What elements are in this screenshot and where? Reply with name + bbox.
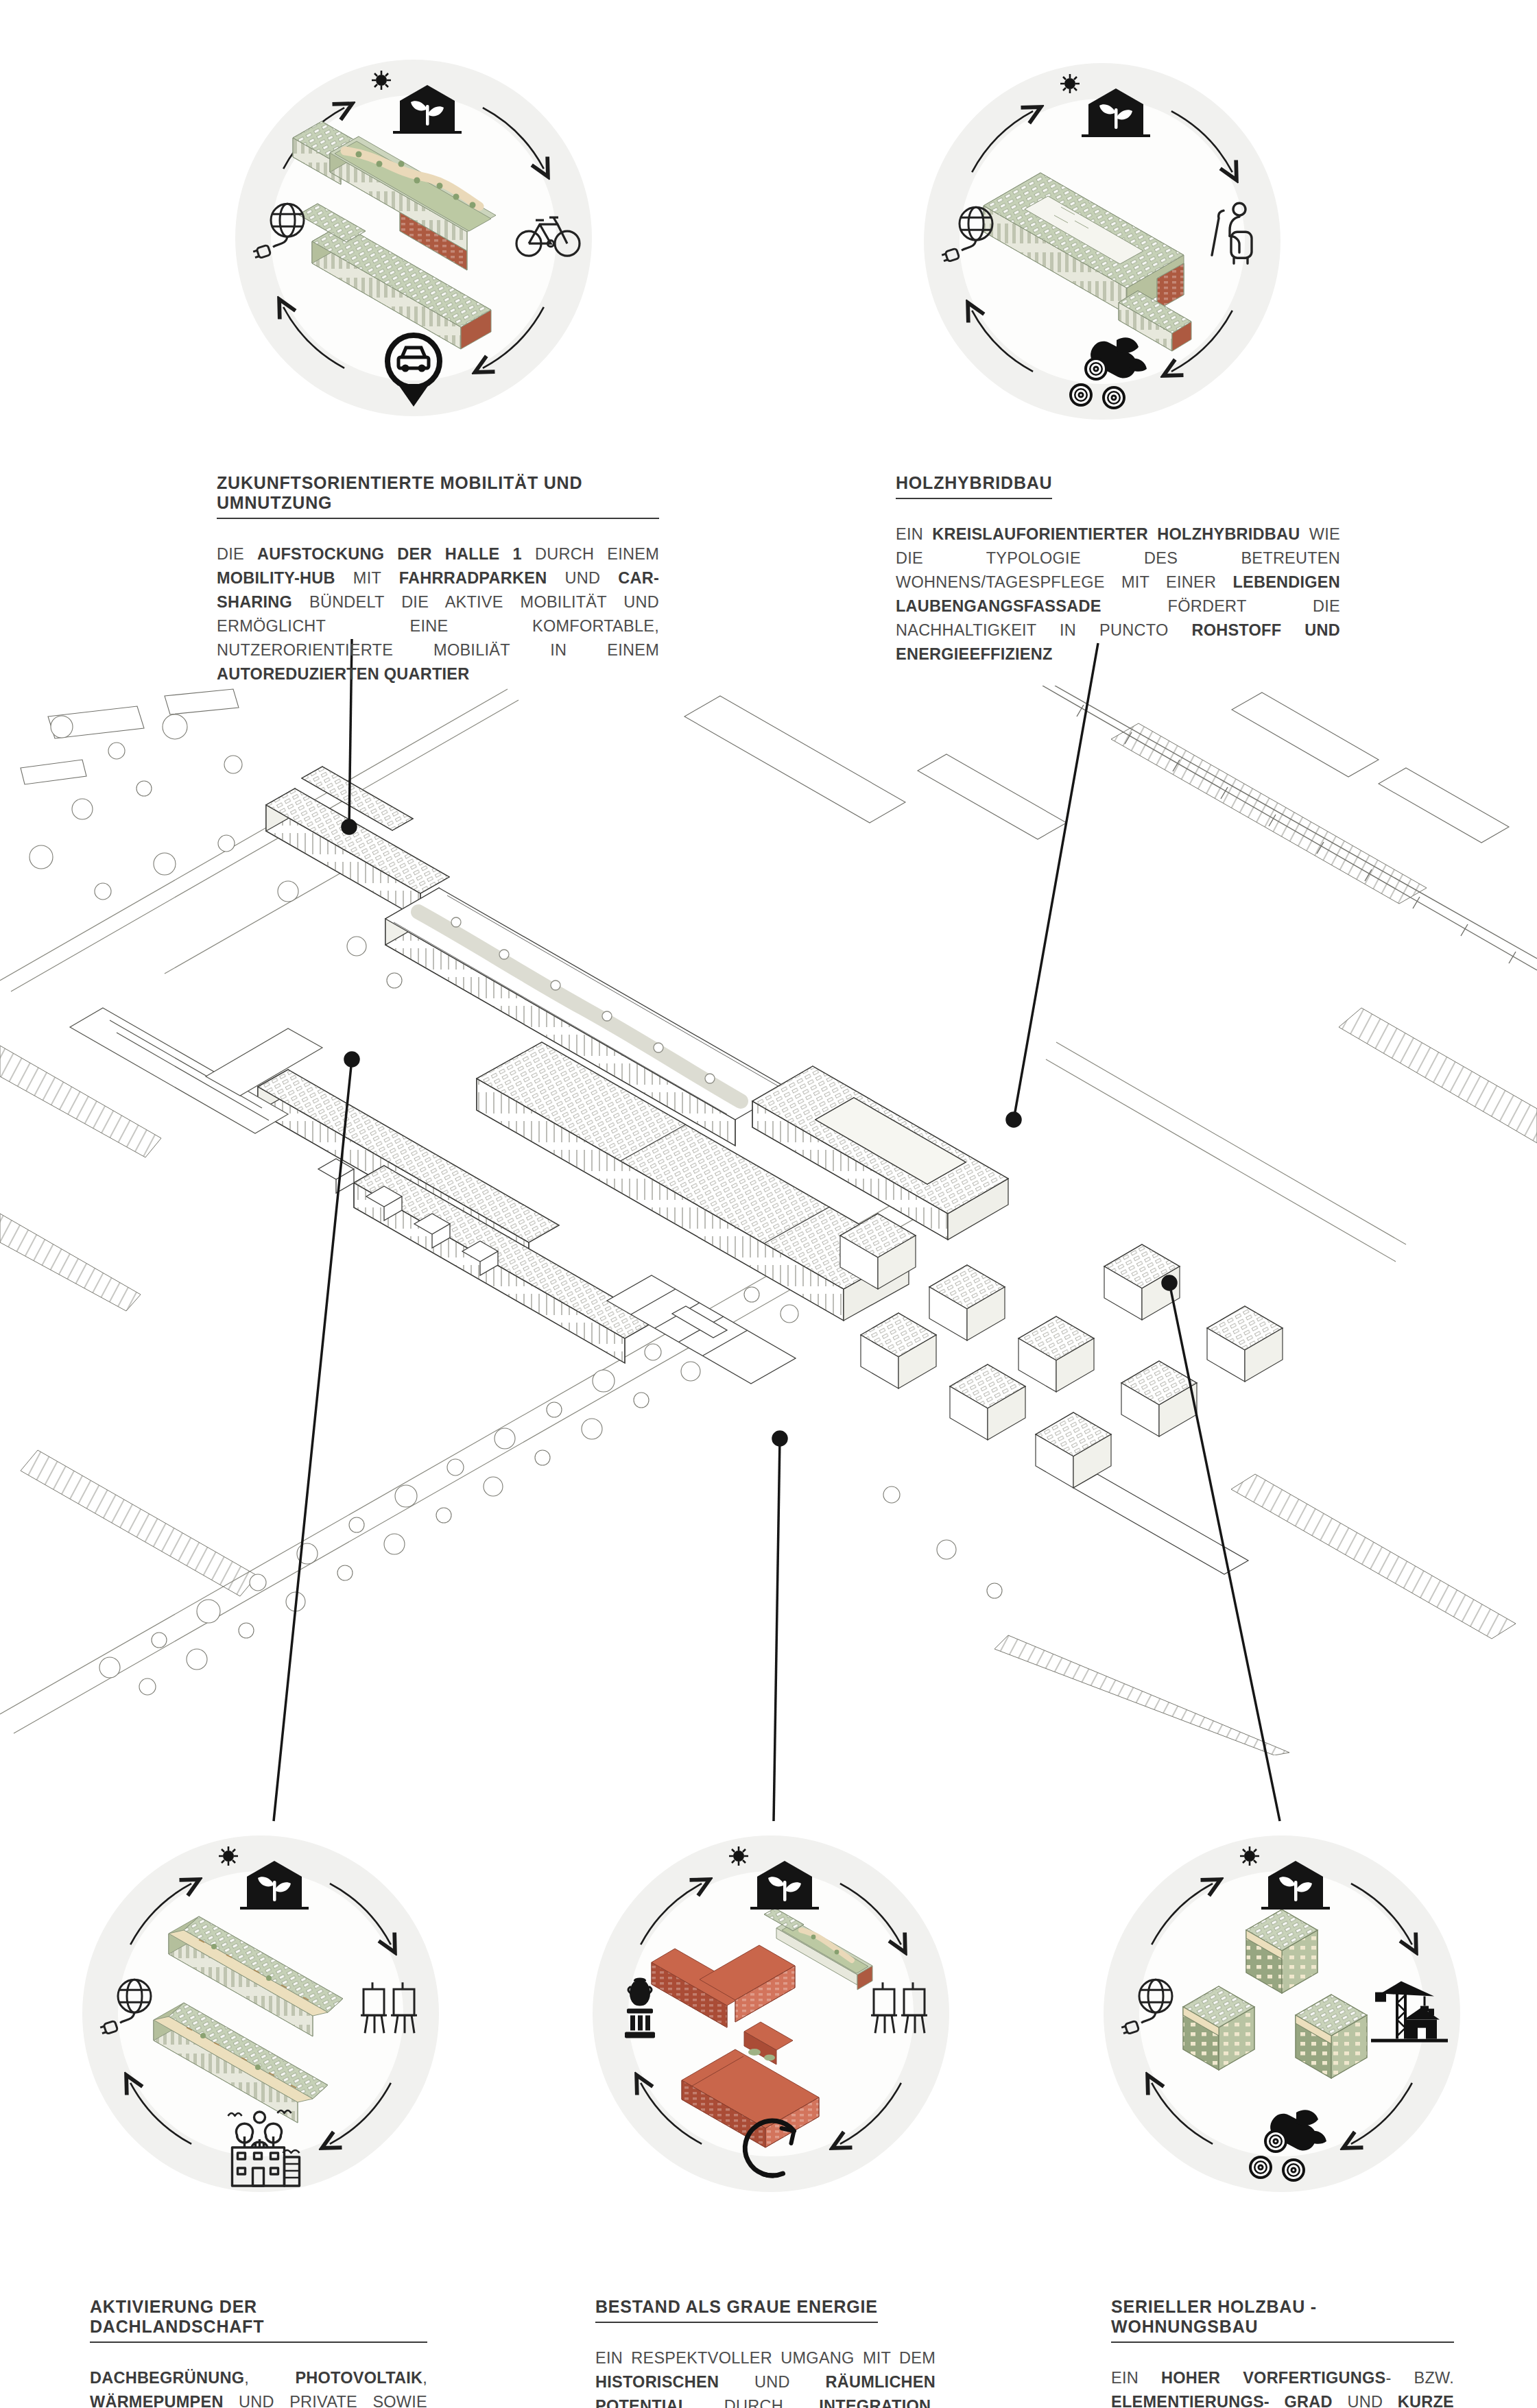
historic-artifact-icon xyxy=(602,1966,678,2048)
section-bestand-text: BESTAND ALS GRAUE ENERGIE EIN RESPEKTVOL… xyxy=(595,2297,936,2408)
section-dachlandschaft-text: AKTIVIERUNG DER DACHLANDSCHAFT DACHBEGRÜ… xyxy=(90,2297,427,2408)
timber-cube xyxy=(1246,1910,1318,1993)
timber-logs-icon xyxy=(1058,329,1147,418)
globe-plug-icon xyxy=(1113,1970,1189,2045)
heat-pump-icon xyxy=(860,1970,942,2045)
globe-plug-icon xyxy=(933,197,1009,273)
cycle-diagram-mobility xyxy=(235,60,592,416)
cycle-diagram-holzhybrid xyxy=(924,63,1280,420)
section-body: DIE AUFSTOCKUNG DER HALLE 1 DURCH EINEM … xyxy=(217,542,659,686)
housing-cubes xyxy=(840,1214,1283,1574)
globe-plug-icon xyxy=(92,1970,167,2045)
section-title: BESTAND ALS GRAUE ENERGIE xyxy=(595,2297,878,2323)
cycle-diagram-dachlandschaft xyxy=(82,1835,439,2192)
green-roof-community-icon xyxy=(215,2105,307,2191)
bicycle-icon xyxy=(508,194,585,269)
eco-house-sun-icon xyxy=(209,1841,312,1915)
section-body: EIN HOHER VORFERTIGUNGS- BZW. ELEMENTIER… xyxy=(1111,2366,1454,2408)
timber-logs-icon xyxy=(1237,2102,1326,2191)
heat-pump-icon xyxy=(350,1970,432,2045)
timber-cube xyxy=(1183,1986,1254,2070)
circularity-arrows-icon xyxy=(728,2105,814,2191)
cycle-diagram-holzbau xyxy=(1104,1835,1460,2192)
section-body: EIN KREISLAUFORIENTIERTER HOLZHYBRIDBAU … xyxy=(896,522,1340,666)
section-title: SERIELLER HOLZBAU - WOHNUNGSBAU xyxy=(1111,2297,1454,2343)
section-holzhybrid-text: HOLZHYBRIDBAU EIN KREISLAUFORIENTIERTER … xyxy=(896,473,1340,666)
eco-house-sun-icon xyxy=(1051,69,1154,143)
globe-plug-icon xyxy=(245,194,320,269)
cycle-diagram-bestand xyxy=(593,1835,949,2192)
eco-house-sun-icon xyxy=(1230,1841,1333,1915)
section-body: DACHBEGRÜNUNG, PHOTOVOLTAIK, WÄRMEPUMPEN… xyxy=(90,2366,427,2408)
eco-house-sun-icon xyxy=(362,65,465,139)
assisted-living-icon xyxy=(1198,197,1274,273)
site-axonometric-drawing xyxy=(0,686,1537,1755)
section-holzbau-text: SERIELLER HOLZBAU - WOHNUNGSBAU EIN HOHE… xyxy=(1111,2297,1454,2408)
section-title: AKTIVIERUNG DER DACHLANDSCHAFT xyxy=(90,2297,427,2343)
architecture-concept-poster: ZUKUNFTSORIENTIERTE MOBILITÄT UND UMNUTZ… xyxy=(0,0,1537,2408)
construction-crane-icon xyxy=(1364,1962,1453,2051)
timber-cube xyxy=(1296,1995,1367,2078)
eco-house-sun-icon xyxy=(719,1841,822,1915)
car-sharing-pin-icon xyxy=(369,326,458,415)
section-title: ZUKUNFTSORIENTIERTE MOBILITÄT UND UMNUTZ… xyxy=(217,473,659,519)
section-mobility-text: ZUKUNFTSORIENTIERTE MOBILITÄT UND UMNUTZ… xyxy=(217,473,659,686)
section-body: EIN RESPEKTVOLLER UMGANG MIT DEM HISTORI… xyxy=(595,2346,936,2408)
section-title: HOLZHYBRIDBAU xyxy=(896,473,1052,499)
